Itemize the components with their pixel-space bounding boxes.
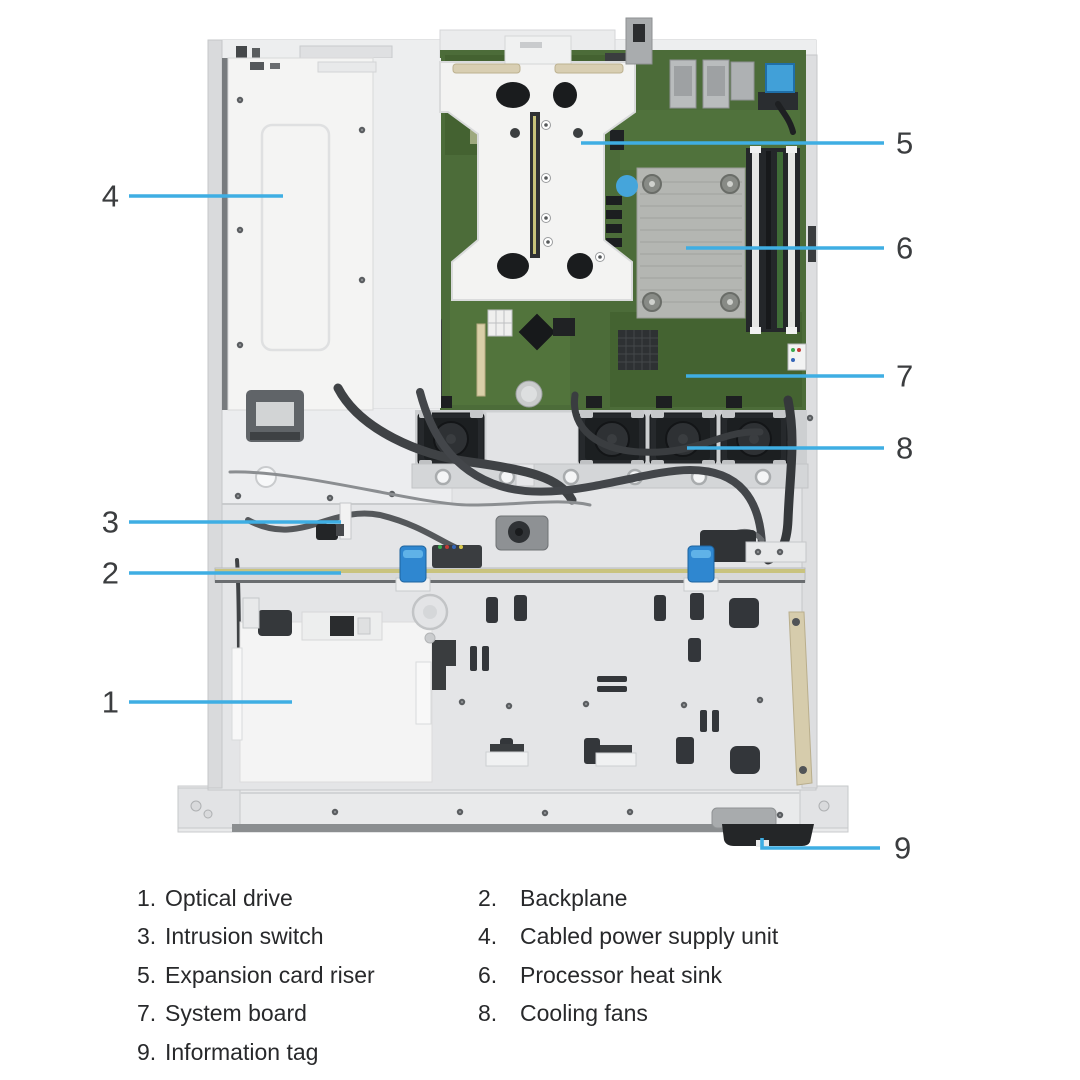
fan-2 bbox=[579, 410, 645, 468]
board-slot bbox=[477, 324, 485, 396]
power-supply-unit bbox=[222, 58, 441, 442]
optical-drive bbox=[232, 598, 432, 782]
callout-number-7: 7 bbox=[896, 359, 913, 394]
backplane-latch-1 bbox=[396, 546, 430, 591]
memory-module bbox=[777, 152, 783, 328]
callout-number-6: 6 bbox=[896, 231, 913, 266]
backplane-latch-2 bbox=[684, 546, 718, 591]
callout-number-5: 5 bbox=[896, 126, 913, 161]
dimm-slots bbox=[746, 146, 800, 334]
diagram-canvas: 1 2 3 4 5 6 7 bbox=[0, 0, 1080, 1080]
chassis-left-wall bbox=[208, 40, 222, 788]
chipset-heatsink bbox=[618, 330, 658, 370]
callout-number-9: 9 bbox=[894, 831, 911, 866]
server-internal-diagram: 1 2 3 4 5 6 7 bbox=[0, 0, 1080, 1080]
callout-number-4: 4 bbox=[102, 179, 119, 214]
psu-output-connector bbox=[246, 390, 304, 442]
callout-number-1: 1 bbox=[102, 685, 119, 720]
callout-number-3: 3 bbox=[102, 505, 119, 540]
callout-number-8: 8 bbox=[896, 431, 913, 466]
fan-3 bbox=[650, 410, 716, 468]
optical-sata-connector bbox=[258, 610, 292, 636]
cable-clamp-knob bbox=[496, 516, 548, 550]
callout-number-2: 2 bbox=[102, 556, 119, 591]
backplane-connector-left bbox=[432, 545, 482, 568]
processor-heatsink bbox=[637, 168, 745, 318]
blue-standoff bbox=[616, 175, 638, 197]
usb-port bbox=[766, 64, 794, 92]
bracket-right bbox=[746, 542, 806, 562]
fan-4 bbox=[721, 410, 787, 468]
riser-rear-clamp bbox=[626, 18, 652, 64]
